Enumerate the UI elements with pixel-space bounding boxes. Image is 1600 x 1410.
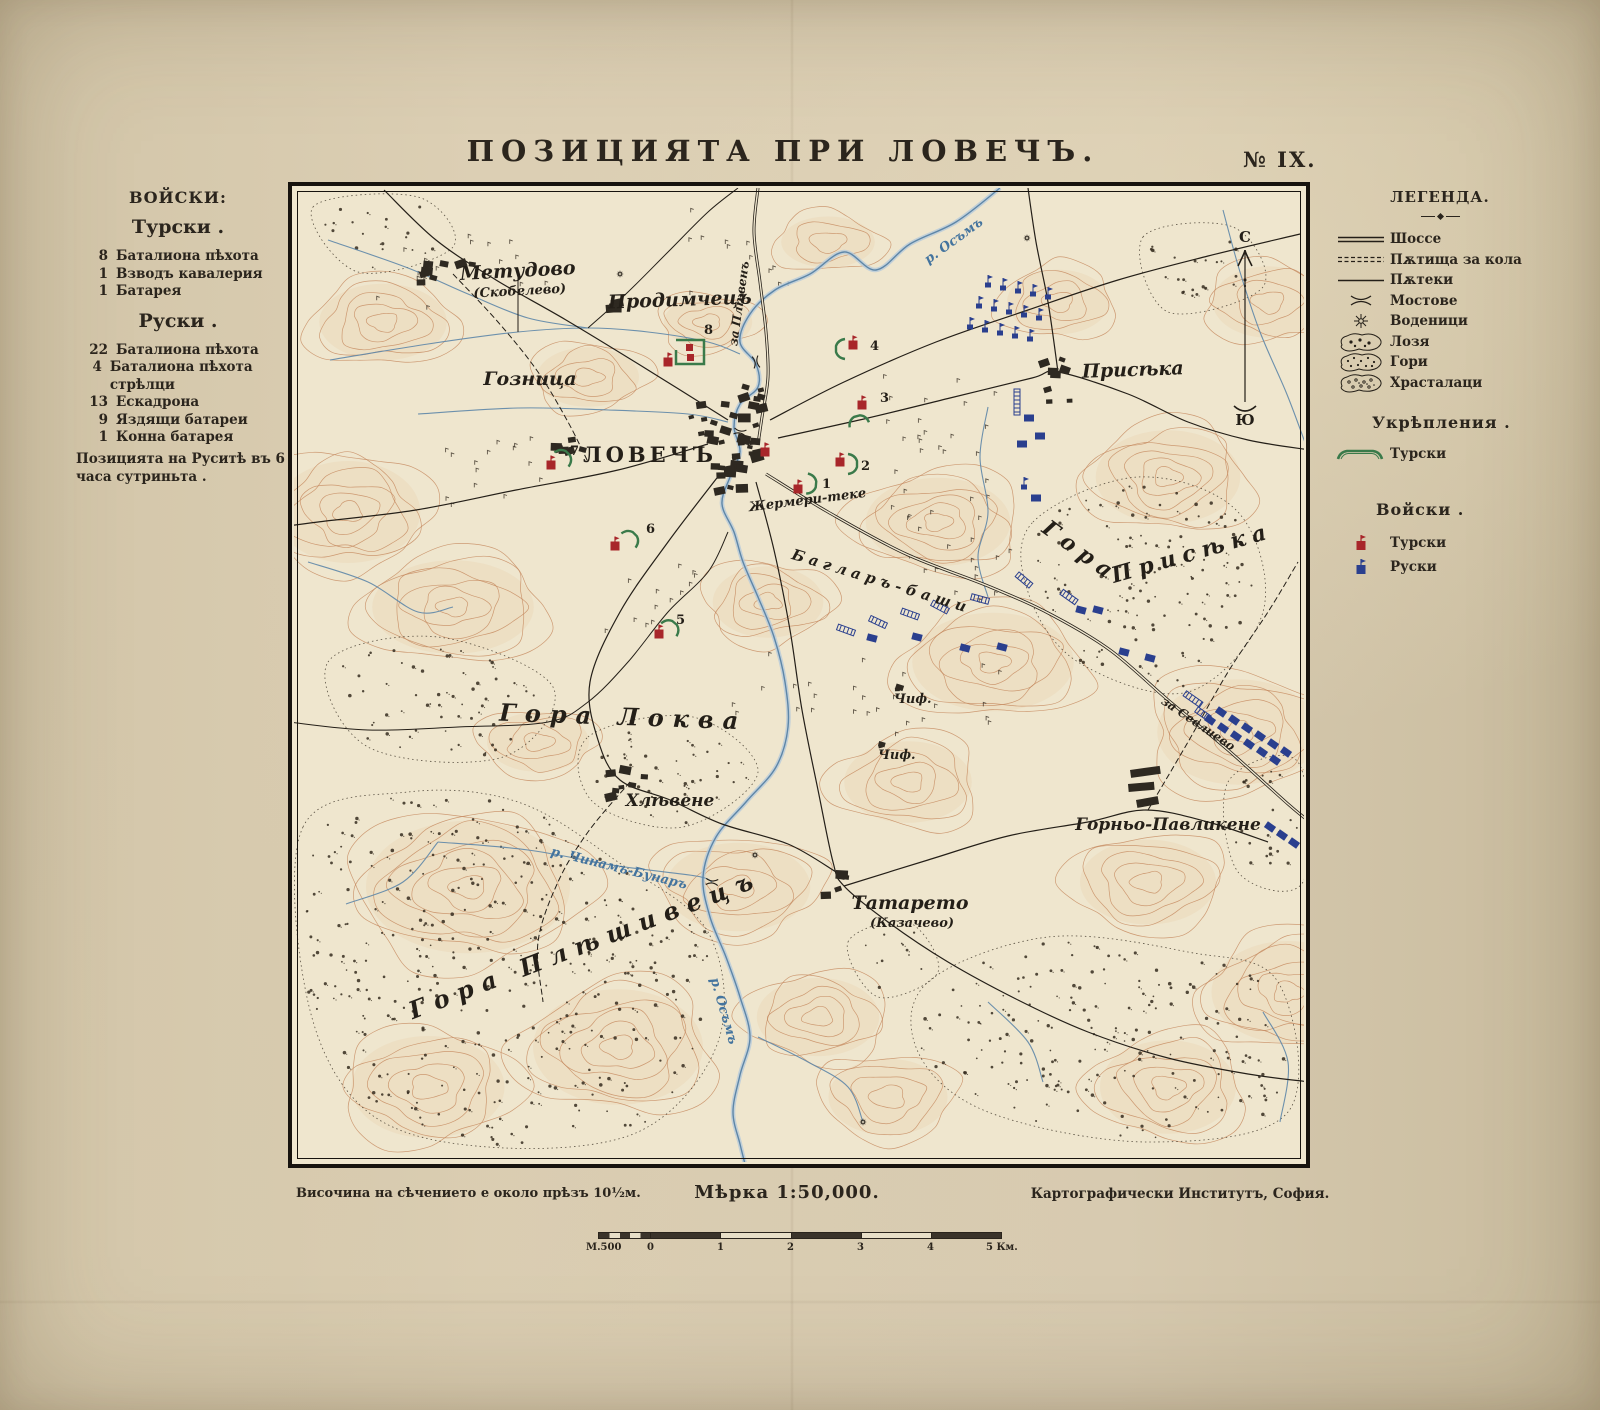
map-canvas: С Ю Метудово (Скобелево) Продимчецъ Гозн… <box>288 182 1310 1168</box>
label-goznitsa: Гозница <box>482 368 576 390</box>
legend-row: Пѫтища за кола <box>1332 250 1577 271</box>
redoubt-number-3: 3 <box>880 391 889 406</box>
contour-interval-note: Височина на сѣчението е около прѣзъ 10½м… <box>296 1186 641 1201</box>
turkish-fortification-symbol <box>1332 445 1390 463</box>
compass-north-label: С <box>1239 228 1251 246</box>
redoubt-number-5: 5 <box>676 613 685 628</box>
redoubt-number-6: 6 <box>646 522 655 537</box>
legend-row: Лозя <box>1332 332 1577 353</box>
legend-row: Храсталаци <box>1332 373 1577 394</box>
label-chiflik-2: Чиф. <box>878 748 916 763</box>
paper-crease-horizontal <box>0 1300 1600 1304</box>
redoubt-number-2: 2 <box>861 459 870 474</box>
troop-row: 22Баталиона пѣхота <box>62 342 294 360</box>
bridge-symbol <box>1332 293 1390 308</box>
scalebar-label: 0 <box>647 1242 654 1253</box>
troops-legend-heading: Войски . <box>1376 500 1577 519</box>
troop-row: 1Конна батарея <box>62 429 294 447</box>
cart-roads-symbol <box>1332 255 1390 264</box>
turkish-heading: Турски . <box>62 216 294 238</box>
legend-panel: ЛЕГЕНДА. Шоссе Пѫтища за кола Пѫтеки Мос… <box>1332 188 1577 579</box>
scalebar-label: 4 <box>927 1242 934 1253</box>
legend-ornament <box>1360 214 1520 219</box>
troop-row: 1Батарея <box>62 283 294 301</box>
legend-row: Воденици <box>1332 311 1577 332</box>
scalebar-label: 5 Км. <box>986 1242 1018 1253</box>
redoubt-number-7: 7 <box>570 444 579 459</box>
watermill-symbol <box>1332 313 1390 329</box>
legend-row: Турски <box>1332 531 1577 555</box>
scale-label: Мѣрка 1:50,000. <box>694 1182 879 1203</box>
label-gornyo-pavlikene: Горньо-Павликене <box>1074 815 1261 835</box>
legend-row: Гори <box>1332 352 1577 373</box>
troop-row: 1Взводъ кавалерия <box>62 266 294 284</box>
map-title: ПОЗИЦИЯТА ПРИ ЛОВЕЧЪ. <box>467 134 1100 168</box>
publisher: Картографически Институтъ, София. <box>1031 1186 1330 1202</box>
chaussee-symbol <box>1332 235 1390 244</box>
russian-heading: Руски . <box>62 310 294 332</box>
label-hlevene: Хлѣвене <box>625 791 715 811</box>
scale-bar: М.500 0 1 2 3 4 5 Км. <box>598 1226 1000 1258</box>
map-sheet: ПОЗИЦИЯТА ПРИ ЛОВЕЧЪ. № IX. ВОЙСКИ: Турс… <box>0 0 1600 1410</box>
label-priseka: Присѣка <box>1081 357 1184 383</box>
position-note: Позицията на Руситѣ въ 6 часа сутриньта … <box>76 450 288 486</box>
turkish-troops-symbol <box>1332 534 1390 552</box>
troop-row: 8Баталиона пѣхота <box>62 248 294 266</box>
compass-south-label: Ю <box>1235 411 1254 429</box>
scalebar-label: 2 <box>787 1242 794 1253</box>
troop-row: 13Ескадрона <box>62 394 294 412</box>
label-chiflik-1: Чиф. <box>894 692 932 707</box>
redoubt-number-1: 1 <box>822 477 831 492</box>
redoubt-number-8: 8 <box>704 323 713 338</box>
fortifications-heading: Укрѣпления . <box>1372 413 1577 432</box>
russian-troops-symbol <box>1332 558 1390 576</box>
scalebar-label: 3 <box>857 1242 864 1253</box>
legend-row: Мостове <box>1332 291 1577 312</box>
legend-row: Пѫтеки <box>1332 270 1577 291</box>
label-tatareto-alt: (Казачево) <box>870 916 954 931</box>
legend-row: Руски <box>1332 555 1577 579</box>
scalebar-label: М.500 <box>586 1242 621 1253</box>
scalebar-label: 1 <box>717 1242 724 1253</box>
troop-row: 9Яздящи батареи <box>62 412 294 430</box>
troops-heading: ВОЙСКИ: <box>62 188 294 207</box>
shrub-symbol <box>1332 371 1390 395</box>
redoubt-number-4: 4 <box>870 339 879 354</box>
legend-heading: ЛЕГЕНДА. <box>1360 188 1520 206</box>
legend-row: Шоссе <box>1332 229 1577 250</box>
troop-row: 4Баталиона пѣхота стрѣлци <box>62 359 294 394</box>
legend-row: Турски <box>1332 442 1577 466</box>
label-tatareto: Татарето <box>851 892 968 914</box>
troops-panel: ВОЙСКИ: Турски . 8Баталиона пѣхота 1Взво… <box>62 188 294 447</box>
label-lovech: ЛОВЕЧЪ <box>583 442 717 467</box>
sheet-number: № IX. <box>1243 147 1317 172</box>
footpath-symbol <box>1332 277 1390 284</box>
scale-bar-graphic <box>598 1232 1002 1239</box>
